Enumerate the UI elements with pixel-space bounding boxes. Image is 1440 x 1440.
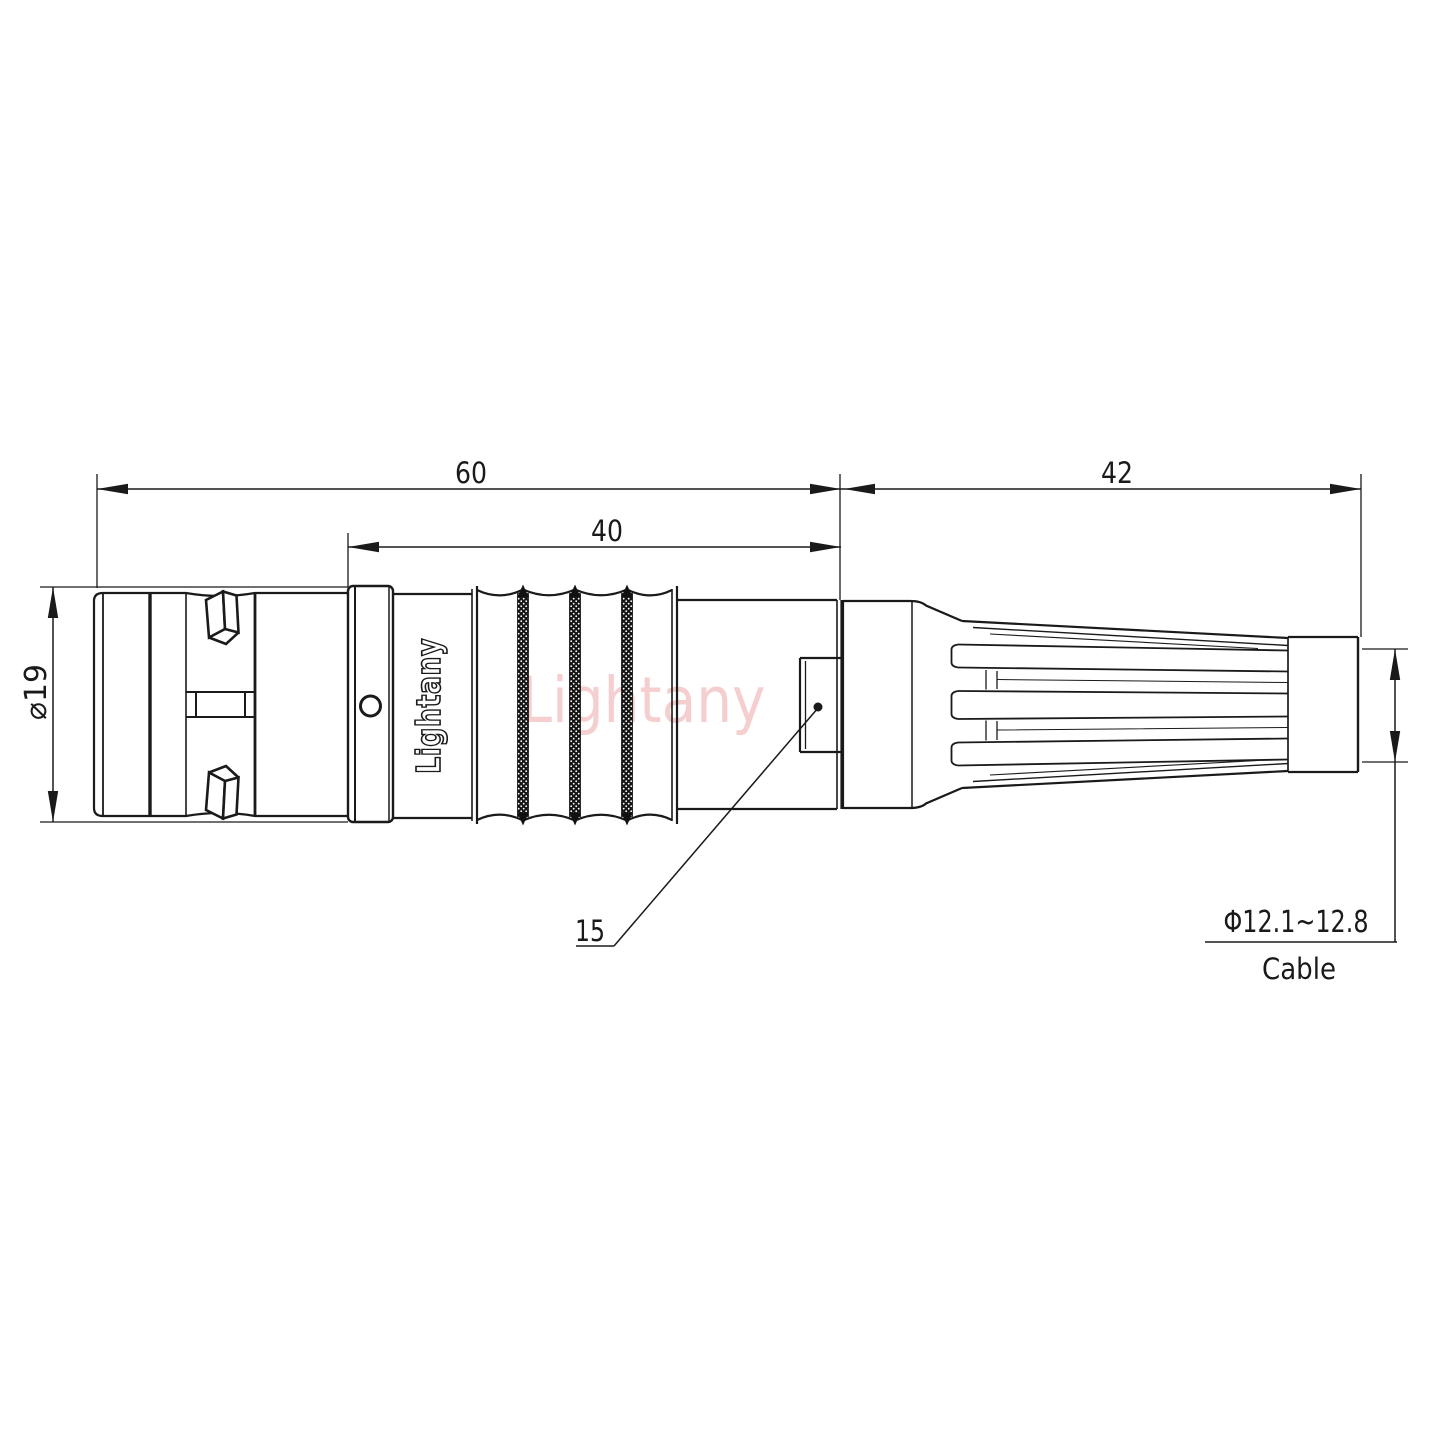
key-15-label: 15 — [575, 914, 605, 948]
cable-label: Cable — [1262, 952, 1336, 986]
diameter-19-label: ⌀19 — [19, 664, 54, 720]
body-engraving-text: Lightany — [409, 638, 448, 774]
dimension-60-label: 60 — [455, 456, 487, 490]
cable-diameter-label: Φ12.1~12.8 — [1224, 905, 1369, 940]
knurl-band — [518, 585, 529, 826]
watermark-text: Lightany — [521, 664, 766, 737]
technical-drawing-canvas: Lightany — [0, 0, 1440, 1440]
connector-drawing-svg: Lightany — [0, 0, 1440, 1440]
knurl-band — [622, 585, 633, 826]
dimension-40-label: 40 — [591, 514, 623, 548]
dimension-42-label: 42 — [1101, 456, 1133, 490]
knurl-band — [570, 585, 581, 826]
